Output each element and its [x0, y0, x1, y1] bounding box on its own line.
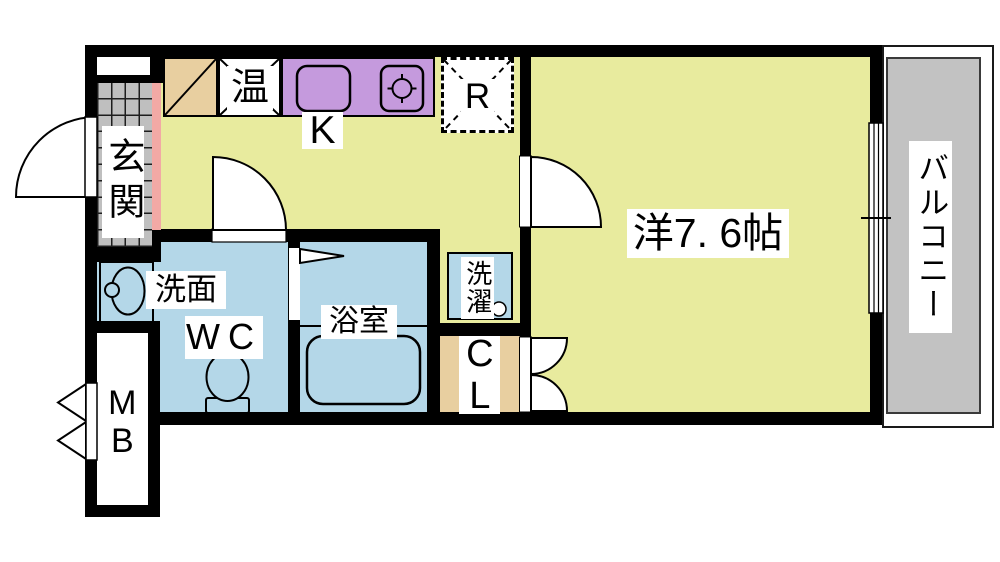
toilet-label: WC — [185, 316, 263, 359]
kitchen-counter — [281, 57, 435, 117]
meter-box-door-upper — [58, 384, 86, 421]
entrance-step — [152, 83, 161, 230]
laundry-label: 洗濯 — [461, 257, 494, 319]
shoe-cabinet — [163, 57, 218, 117]
bathroom-label: 浴室 — [321, 305, 397, 339]
wall-interior-main — [520, 45, 531, 412]
vanity-label: 洗面 — [146, 271, 226, 309]
refrigerator-label: R — [461, 79, 494, 115]
closet-label: CL — [459, 336, 500, 414]
entrance-door-swing — [16, 117, 96, 197]
wall-bathroom-right — [427, 229, 440, 412]
meter-box-label: MB — [103, 386, 141, 458]
water-heater-label: 温 — [227, 66, 273, 110]
wall-top — [85, 45, 882, 57]
entrance-label: 玄関 — [102, 126, 144, 238]
entrance-top-opening — [97, 57, 150, 75]
wall-right — [870, 45, 882, 425]
wall-bottom — [160, 412, 882, 425]
balcony-label: バルコニー — [909, 141, 952, 333]
kitchen-label: K — [302, 112, 343, 149]
wall-washroom-bathroom — [288, 229, 300, 412]
floor-plan: 玄関 温 K R 洋7. 6帖 バルコニー 洗面 WC 浴室 洗濯 CL MB — [0, 0, 1000, 562]
western-room-label: 洋7. 6帖 — [627, 209, 789, 258]
meter-box-door-lower — [58, 422, 86, 459]
